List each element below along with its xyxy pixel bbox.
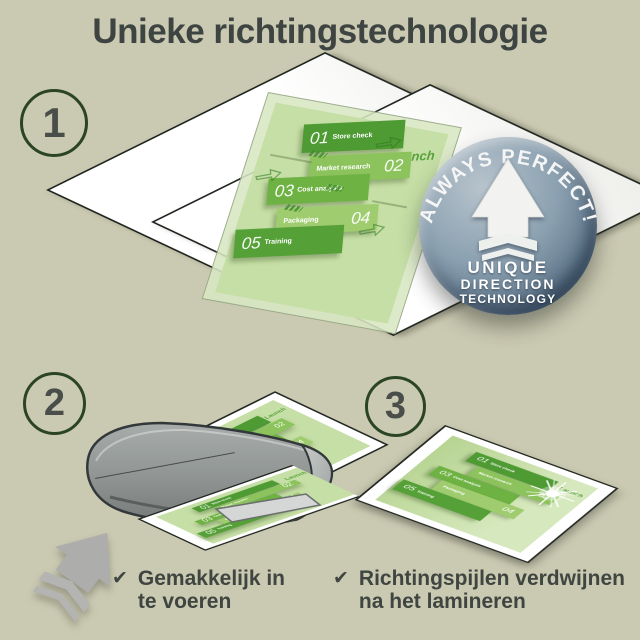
checklist-item-arrows-disappear: ✔ Richtingspijlen verdwijnen na het lami… xyxy=(333,567,625,613)
step-3-number-circle: 3 xyxy=(365,376,426,437)
step-3-number: 3 xyxy=(385,385,406,428)
page-title: Unieke richtingstechnologie xyxy=(0,12,640,52)
step-1-number: 1 xyxy=(42,99,65,147)
checklist-line: Gemakkelijk in xyxy=(138,567,285,590)
checklist-line: Richtingspijlen verdwijnen xyxy=(359,567,625,590)
step-2-number: 2 xyxy=(44,382,65,425)
always-perfect-badge: ALWAYS PERFECT! UNIQUE DIRECTION TECHNOL… xyxy=(419,137,597,315)
badge-line-unique: UNIQUE xyxy=(419,258,597,277)
document-laminated-result: Launch 01Store check Market research02 0… xyxy=(355,425,619,563)
check-icon: ✔ xyxy=(333,567,349,613)
green-arrow-icon xyxy=(354,214,390,241)
machine-exit-tray xyxy=(70,393,350,543)
checklist-line: te voeren xyxy=(138,590,285,613)
badge-line-technology: TECHNOLOGY xyxy=(419,293,597,306)
badge-caption: UNIQUE DIRECTION TECHNOLOGY xyxy=(419,258,597,306)
up-arrow-icon xyxy=(472,159,544,261)
badge-line-direction: DIRECTION xyxy=(419,277,597,293)
checklist-line: na het lamineren xyxy=(359,590,625,613)
infographic-block-5: 05 Training xyxy=(233,225,344,259)
product-infographic: Unieke richtingstechnologie 1 Launch 01 … xyxy=(0,0,640,640)
step-1-number-circle: 1 xyxy=(20,89,88,157)
